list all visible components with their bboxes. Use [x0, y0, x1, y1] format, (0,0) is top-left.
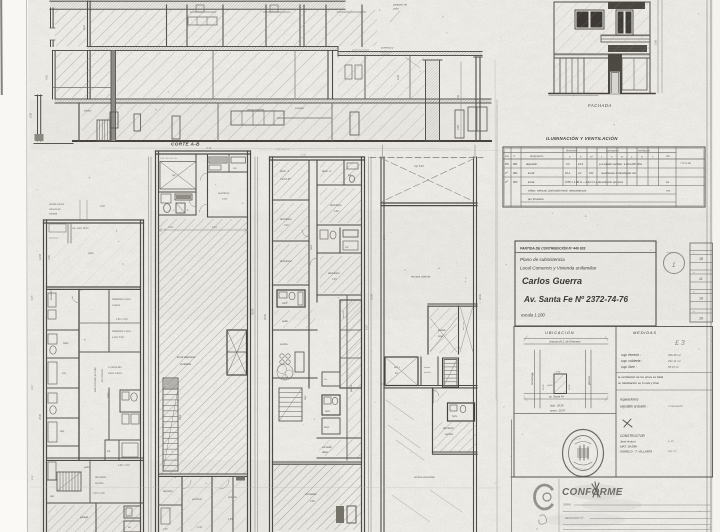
- svg-text:sótano: sótano: [84, 110, 92, 113]
- svg-text:s/ planta alta: s/ planta alta: [108, 366, 122, 369]
- svg-text:vestíbulo: vestíbulo: [192, 498, 203, 501]
- svg-text:servicio: servicio: [445, 433, 454, 436]
- svg-text:dormitorio: dormitorio: [280, 259, 292, 263]
- svg-text:pat.: pat.: [171, 174, 176, 177]
- svg-text:sup 5.60: sup 5.60: [414, 165, 424, 168]
- svg-text:FACHADA: FACHADA: [588, 103, 612, 108]
- svg-text:por trimestre: por trimestre: [527, 197, 544, 201]
- svg-text:baja: baja: [305, 395, 307, 400]
- svg-text:guarda: guarda: [438, 329, 446, 332]
- svg-text:CORTE A-B: CORTE A-B: [171, 142, 200, 147]
- svg-text:UBICACIÓN: UBICACIÓN: [545, 330, 574, 335]
- svg-text:ventilado: ventilado: [180, 362, 192, 366]
- svg-text:madera: madera: [112, 304, 121, 307]
- svg-text:25.60: 25.60: [264, 313, 267, 321]
- svg-text:aire/luz: aire/luz: [343, 310, 345, 318]
- svg-text:habitación 2 piso: habitación 2 piso: [112, 298, 131, 301]
- svg-text:PARTIDA DE CONTRIBUCIÓN: PARTIDA DE CONTRIBUCIÓN Nº 440 833: [520, 246, 586, 251]
- svg-text:4.60: 4.60: [456, 94, 460, 100]
- svg-text:planch.: planch.: [423, 372, 431, 374]
- svg-text:su habilitación se h: su habilitación se h nula y final: [618, 381, 659, 385]
- svg-text:2.80 × 3.10: 2.80 × 3.10: [117, 464, 130, 467]
- svg-text:3.90: 3.90: [48, 255, 51, 260]
- svg-text:6.40: 6.40: [31, 385, 34, 390]
- svg-text:c.travessión: c.travessión: [668, 404, 683, 408]
- svg-text:4.1: 4.1: [578, 171, 582, 175]
- svg-text:18: 18: [699, 257, 703, 261]
- svg-text:local depósito: local depósito: [177, 355, 196, 359]
- svg-text:3.70: 3.70: [222, 198, 227, 201]
- svg-text:dep.: dep.: [60, 430, 65, 433]
- svg-text:estar: estar: [282, 319, 288, 323]
- svg-text:depósito: depósito: [526, 162, 538, 166]
- svg-text:3.45: 3.45: [332, 278, 337, 281]
- svg-text:3.20×3.85: 3.20×3.85: [280, 178, 291, 181]
- svg-text:MAT. 28.098: MAT. 28.098: [620, 445, 637, 449]
- svg-text:mesada: mesada: [295, 107, 304, 110]
- svg-text:21.4: 21.4: [577, 162, 584, 166]
- svg-text:≈ 6 m² alt: ≈ 6 m² alt: [680, 161, 691, 165]
- svg-text:mts: mts: [666, 189, 671, 193]
- svg-text:patio: patio: [83, 466, 90, 469]
- svg-text:coc.: coc.: [233, 167, 238, 170]
- svg-text:Carlos Guerra: Carlos Guerra: [522, 276, 582, 286]
- svg-text:19: 19: [699, 297, 703, 301]
- svg-text:sala comedor de estar: sala comedor de estar: [94, 367, 97, 392]
- svg-text:servicio: servicio: [95, 482, 104, 485]
- svg-text:002: 002: [513, 171, 518, 175]
- svg-text:25.60: 25.60: [543, 384, 545, 391]
- svg-text:piso: piso: [504, 156, 510, 158]
- svg-text:- 2.08 -: - 2.08 -: [196, 527, 204, 529]
- svg-text:6.00: 6.00: [396, 74, 400, 80]
- svg-text:designación: designación: [530, 155, 544, 158]
- svg-text:291.11 m²: 291.11 m²: [667, 359, 681, 363]
- svg-text:habitación 1 piso: habitación 1 piso: [112, 330, 131, 333]
- svg-text:11: 11: [699, 277, 703, 281]
- svg-text:3.20: 3.20: [284, 225, 289, 227]
- svg-text:dorm. 1: dorm. 1: [280, 169, 289, 173]
- svg-text:los comunes: los comunes: [102, 368, 104, 382]
- svg-text:dormitorio: dormitorio: [95, 476, 107, 479]
- svg-text:dorm. 2: dorm. 2: [322, 169, 331, 173]
- svg-text:azotea transitable: azotea transitable: [352, 49, 370, 52]
- svg-text:comercio y: comercio y: [381, 46, 394, 50]
- svg-text:ropa: ropa: [438, 335, 443, 338]
- svg-text:4.12: 4.12: [31, 475, 34, 480]
- svg-text:dormitorio: dormitorio: [328, 271, 340, 275]
- svg-text:número de: número de: [49, 208, 61, 211]
- svg-text:ILUMINACIÓN Y VENTILACIÓN: ILUMINACIÓN Y VENTILACIÓN: [546, 136, 618, 141]
- svg-text:Local Comercio y Vivienda u: Local Comercio y Vivienda unifamiliar: [520, 266, 597, 271]
- svg-text:resultantes 2 claraboÿas v: resultantes 2 claraboÿas vid: [601, 171, 636, 175]
- svg-text:Av. Santa Fe Nº 2372-74-76: Av. Santa Fe Nº 2372-74-76: [523, 295, 628, 304]
- svg-text:toil.: toil.: [324, 378, 328, 381]
- svg-text:0.80 × 1.40 m – 1.12 m² a d: 0.80 × 1.40 m – 1.12 m² a demolución por…: [565, 180, 624, 184]
- svg-text:puerta existente: puerta existente: [246, 109, 265, 112]
- svg-text:galería: galería: [351, 384, 353, 392]
- svg-text:aire y: aire y: [394, 366, 401, 369]
- svg-text:sup. libre :: sup. libre :: [621, 365, 637, 369]
- svg-text:av. Santa Fe: av. Santa Fe: [549, 395, 565, 399]
- svg-text:cuarto: cuarto: [424, 366, 431, 369]
- svg-text:entrada: entrada: [228, 496, 237, 499]
- svg-text:patio: patio: [87, 251, 94, 255]
- svg-text:parapeto de: parapeto de: [392, 3, 407, 7]
- svg-text:local: local: [528, 180, 535, 184]
- svg-text:3.10: 3.10: [82, 24, 86, 30]
- svg-text:001: 001: [513, 162, 518, 166]
- svg-text:garage: garage: [80, 515, 89, 519]
- svg-text:26.09: 26.09: [252, 308, 255, 316]
- svg-text:3.50: 3.50: [334, 211, 339, 213]
- svg-text:a piso 5.30: a piso 5.30: [112, 336, 124, 339]
- svg-text:baño: baño: [107, 392, 110, 398]
- svg-text:reparaciones: reparaciones: [620, 398, 639, 402]
- svg-text:sup. terreno :: sup. terreno :: [621, 353, 641, 357]
- svg-text:4.20: 4.20: [45, 74, 49, 80]
- svg-text:habitación: habitación: [381, 49, 393, 53]
- svg-text:s/decr. edecual. (período): s/decr. edecual. (período) result. reduc…: [528, 189, 588, 193]
- svg-text:vereda común: vereda común: [49, 203, 65, 206]
- svg-text:Plano de subsistencia: Plano de subsistencia: [520, 257, 565, 262]
- svg-text:escritorio: escritorio: [218, 191, 230, 195]
- svg-text:a. m²: a. m²: [668, 440, 674, 443]
- svg-text:25.60: 25.60: [39, 413, 42, 421]
- svg-text:aire y luz: aire y luz: [462, 321, 465, 330]
- svg-text:£ 3: £ 3: [674, 340, 685, 347]
- svg-text:dormitorio: dormitorio: [330, 203, 342, 207]
- svg-text:sup. cubierta :: sup. cubierta :: [621, 359, 642, 363]
- svg-text:entrada: entrada: [49, 213, 58, 216]
- svg-text:OBRA: OBRA: [563, 503, 571, 507]
- svg-text:ventilación: ventilación: [638, 149, 650, 152]
- svg-text:José Antoni: José Antoni: [620, 440, 636, 444]
- svg-text:3.10 × 3.60: 3.10 × 3.60: [93, 492, 105, 495]
- svg-text:10.2: 10.2: [565, 171, 571, 175]
- svg-text:26.09: 26.09: [479, 293, 482, 301]
- svg-text:caño: caño: [393, 6, 399, 10]
- svg-text:m: m: [641, 155, 643, 158]
- svg-text:visado: visado: [666, 252, 673, 254]
- svg-text:m: m: [621, 155, 623, 158]
- svg-text:55.37 m²: 55.37 m²: [668, 365, 680, 369]
- svg-text:4.2: 4.2: [566, 162, 570, 166]
- svg-text:2.80: 2.80: [29, 112, 33, 119]
- svg-text:26.09: 26.09: [569, 384, 571, 391]
- svg-text:cocina: cocina: [280, 342, 288, 346]
- svg-text:dormitorio: dormitorio: [280, 217, 292, 221]
- svg-text:102: 102: [589, 171, 594, 175]
- svg-text:Pb: Pb: [505, 162, 509, 166]
- svg-text:003: 003: [513, 180, 518, 184]
- svg-text:lavadero: lavadero: [49, 289, 53, 300]
- svg-text:güemes: güemes: [588, 375, 591, 385]
- svg-text:coc.: coc.: [62, 372, 67, 375]
- svg-text:8.05: 8.05: [32, 295, 34, 300]
- svg-text:desp.: desp.: [324, 427, 330, 429]
- svg-text:terraza abierta: terraza abierta: [411, 275, 431, 279]
- svg-text:346.48 m²: 346.48 m²: [668, 353, 682, 357]
- svg-text:p.a.s/patio ventilac. a let: p.a.s/patio ventilac. a letra DF 20m: [598, 162, 643, 166]
- svg-text:toil.: toil.: [107, 450, 111, 453]
- svg-text:9.48: 9.48: [100, 205, 105, 208]
- svg-text:diario: diario: [322, 451, 329, 454]
- svg-text:2.30 1.95 0.80 2.60: 2.30 1.95 0.80 2.60: [159, 158, 178, 160]
- svg-text:24.80: 24.80: [546, 384, 553, 387]
- svg-text:m²: m²: [590, 155, 593, 158]
- svg-text:8.25: 8.25: [366, 325, 369, 330]
- svg-text:2.60: 2.60: [456, 124, 460, 131]
- svg-text:vigente: vigente: [381, 53, 390, 57]
- svg-text:3.95: 3.95: [383, 235, 386, 240]
- svg-text:1: 1: [672, 263, 675, 269]
- svg-text:existe sótano: existe sótano: [108, 372, 123, 375]
- svg-text:coc.: coc.: [345, 247, 350, 249]
- svg-text:sube: sube: [179, 414, 182, 420]
- svg-text:expedido al dueño :: expedido al dueño :: [620, 405, 648, 409]
- svg-text:paso: paso: [311, 244, 313, 251]
- svg-text:AGRELO - T. VILLARTA: AGRELO - T. VILLARTA: [619, 450, 652, 454]
- svg-text:baño: baño: [63, 342, 69, 345]
- svg-text:sup. patio 40.00: sup. patio 40.00: [72, 227, 89, 230]
- svg-text:depósito: depósito: [163, 490, 173, 493]
- svg-text:2.60: 2.60: [654, 39, 658, 46]
- svg-text:azotea accesible: azotea accesible: [414, 475, 435, 479]
- svg-text:la ventilación de los pisos: la ventilación de los pisos se halla: [618, 375, 664, 379]
- svg-text:iluminación: iluminación: [606, 149, 619, 152]
- svg-text:2.90 × 4.20: 2.90 × 4.20: [115, 318, 128, 321]
- svg-text:± 0.00: ± 0.00: [300, 155, 307, 157]
- svg-text:baño: baño: [452, 415, 458, 418]
- svg-text:dormitorio: dormitorio: [443, 427, 454, 430]
- svg-text:13.05: 13.05: [39, 253, 42, 260]
- svg-text:10: 10: [699, 317, 703, 321]
- svg-text:local: local: [528, 171, 535, 175]
- svg-text:4.60: 4.60: [310, 500, 315, 503]
- svg-text:4.05: 4.05: [228, 518, 233, 521]
- svg-text:lado : 28.58: lado : 28.58: [550, 404, 564, 408]
- svg-text:charcas (N.J. de Güemes): charcas (N.J. de Güemes): [549, 340, 580, 344]
- svg-text:baño: baño: [325, 410, 331, 413]
- svg-text:exp. m²: exp. m²: [668, 450, 677, 453]
- svg-text:MEDIDAS: MEDIDAS: [633, 330, 657, 335]
- svg-text:comedor: comedor: [305, 492, 318, 496]
- svg-text:escala 1:100: escala 1:100: [521, 313, 545, 318]
- svg-text:acera : 10.97: acera : 10.97: [550, 409, 566, 413]
- svg-text:3.05: 3.05: [163, 529, 168, 531]
- svg-text:dep.: dep.: [50, 495, 55, 498]
- svg-text:dimensión: dimensión: [566, 149, 578, 152]
- svg-text:25.60: 25.60: [371, 293, 374, 301]
- svg-text:CONSTRUCTOR: CONSTRUCTOR: [620, 434, 645, 438]
